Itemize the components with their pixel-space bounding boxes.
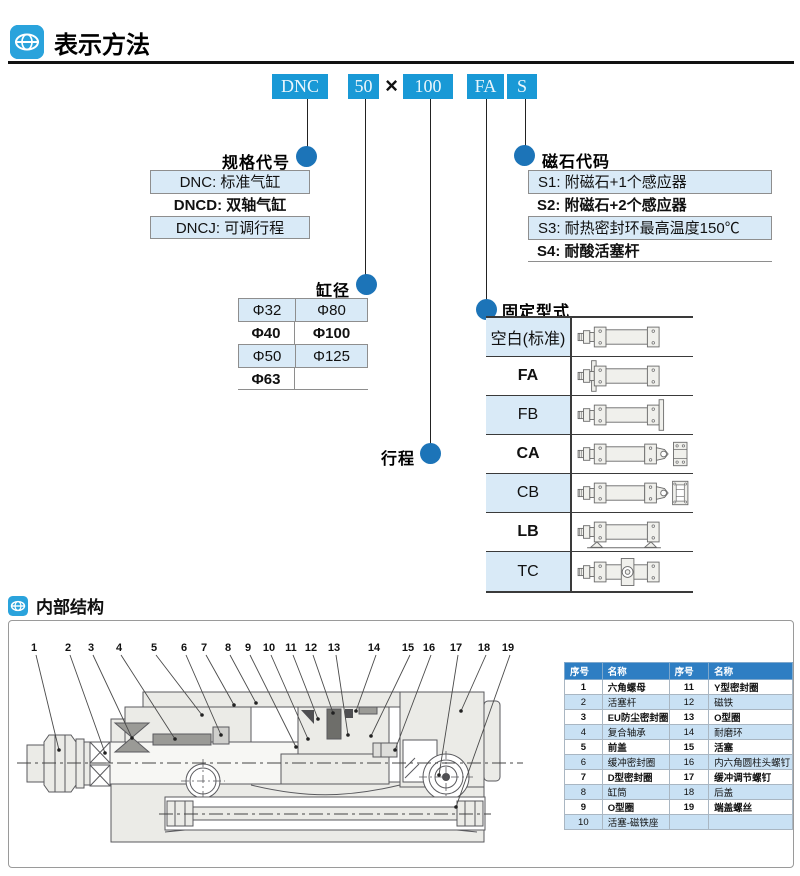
mount-diagram-cb-icon <box>572 474 693 512</box>
callout-number: 10 <box>263 642 275 654</box>
cylinder-cross-section-drawing: 12345678910111213141516171819 <box>15 635 527 853</box>
bore-cell: Φ63 <box>238 368 295 389</box>
parts-row: 9O型圈19端盖螺丝 <box>565 800 793 815</box>
parts-cell: 6 <box>565 755 603 770</box>
parts-row: 10活塞-磁铁座 <box>565 815 793 830</box>
mount-row: LB <box>486 513 693 552</box>
mount-diagram-lb-icon <box>572 513 693 551</box>
callout-number: 11 <box>285 642 297 654</box>
parts-row: 5前盖15活塞 <box>565 740 793 755</box>
parts-table: 序号名称序号名称1六角螺母11Y型密封圈2活塞杆12磁铁3EU防尘密封圈13O型… <box>564 662 793 830</box>
connector-line-stroke <box>430 99 431 444</box>
parts-cell: 11 <box>669 680 709 695</box>
parts-cell: O型圈 <box>602 800 669 815</box>
parts-cell: 14 <box>669 725 709 740</box>
parts-cell: 活塞 <box>709 740 793 755</box>
parts-cell: 磁铁 <box>709 695 793 710</box>
bore-row: Φ40Φ100 <box>238 321 368 344</box>
parts-header-cell: 序号 <box>565 663 603 680</box>
multiply-sign: × <box>380 72 403 100</box>
parts-header-cell: 名称 <box>709 663 793 680</box>
mount-type-table: 空白(标准) FA FB CA <box>486 316 693 593</box>
parts-cell: 端盖螺丝 <box>709 800 793 815</box>
mount-diagram-tc-icon <box>572 552 693 591</box>
bore-table: Φ32Φ80Φ40Φ100Φ50Φ125Φ63 <box>238 298 368 390</box>
mount-diagram-ca-icon <box>572 435 693 473</box>
mount-code: CB <box>486 474 572 512</box>
callout-number: 2 <box>65 642 71 654</box>
parts-cell: 缓冲密封圈 <box>602 755 669 770</box>
series-dot <box>296 146 317 167</box>
parts-cell: 缸筒 <box>602 785 669 800</box>
model-code-stroke: 100 <box>403 74 453 99</box>
parts-header-cell: 序号 <box>669 663 709 680</box>
parts-cell: 16 <box>669 755 709 770</box>
callout-number: 5 <box>151 642 157 654</box>
parts-cell: 13 <box>669 710 709 725</box>
bore-cell: Φ125 <box>296 345 367 367</box>
mount-row: CA <box>486 435 693 474</box>
callout-number: 13 <box>328 642 340 654</box>
model-code-magnet: S <box>507 74 537 99</box>
mount-row: CB <box>486 474 693 513</box>
magnet-code-table: S1: 附磁石+1个感应器S2: 附磁石+2个感应器S3: 耐热密封环最高温度1… <box>528 170 772 262</box>
parts-cell: 5 <box>565 740 603 755</box>
parts-cell: 六角螺母 <box>602 680 669 695</box>
option-row: S1: 附磁石+1个感应器 <box>528 170 772 193</box>
callout-number: 15 <box>402 642 414 654</box>
mount-row: 空白(标准) <box>486 318 693 357</box>
brand-globe-icon <box>10 25 44 59</box>
parts-cell: 耐磨环 <box>709 725 793 740</box>
bore-cell: Φ40 <box>238 322 295 344</box>
model-code-bore: 50 <box>348 74 379 99</box>
parts-cell: EU防尘密封圈 <box>602 710 669 725</box>
model-code-series: DNC <box>272 74 328 99</box>
parts-cell: 8 <box>565 785 603 800</box>
bore-cell: Φ32 <box>239 299 296 321</box>
option-row: S3: 耐热密封环最高温度150℃ <box>528 216 772 239</box>
callout-number: 12 <box>305 642 317 654</box>
connector-line-magnet <box>525 99 526 146</box>
parts-cell: 复合轴承 <box>602 725 669 740</box>
parts-cell: 3 <box>565 710 603 725</box>
option-row: DNCJ: 可调行程 <box>150 216 310 239</box>
option-row: S2: 附磁石+2个感应器 <box>528 193 772 216</box>
parts-row: 6缓冲密封圈16内六角圆柱头螺钉 <box>565 755 793 770</box>
parts-row: 8缸筒18后盖 <box>565 785 793 800</box>
bore-cell <box>295 368 368 389</box>
parts-cell: 内六角圆柱头螺钉 <box>709 755 793 770</box>
parts-cell: 1 <box>565 680 603 695</box>
parts-cell: 后盖 <box>709 785 793 800</box>
datasheet-page: 表示方法 DNC 50 × 100 FA S 规格代号 磁石代码 缸径 固定型式… <box>0 0 800 876</box>
bore-cell: Φ80 <box>296 299 367 321</box>
parts-cell: 10 <box>565 815 603 830</box>
callout-number: 4 <box>116 642 123 654</box>
parts-header-cell: 名称 <box>602 663 669 680</box>
mount-code: 空白(标准) <box>486 318 572 356</box>
page-header: 表示方法 <box>10 22 150 62</box>
parts-cell: 17 <box>669 770 709 785</box>
stroke-label: 行程 <box>347 445 415 469</box>
callout-number: 17 <box>450 642 462 654</box>
section-title: 内部结构 <box>36 593 104 618</box>
page-title: 表示方法 <box>54 25 150 60</box>
mount-row: FA <box>486 357 693 396</box>
mount-diagram-fb-icon <box>572 396 693 434</box>
bore-cell: Φ100 <box>295 322 368 344</box>
parts-cell: 活塞-磁铁座 <box>602 815 669 830</box>
bore-cell: Φ50 <box>239 345 296 367</box>
parts-cell: D型密封圈 <box>602 770 669 785</box>
callout-number: 6 <box>181 642 187 654</box>
callout-number: 18 <box>478 642 490 654</box>
bore-row: Φ50Φ125 <box>238 344 368 367</box>
mount-code: TC <box>486 552 572 591</box>
mount-code: FB <box>486 396 572 434</box>
connector-line-mount <box>486 99 487 300</box>
parts-cell: 19 <box>669 800 709 815</box>
parts-cell: 活塞杆 <box>602 695 669 710</box>
parts-cell: 18 <box>669 785 709 800</box>
mount-diagram-fa-icon <box>572 357 693 395</box>
callout-number: 7 <box>201 642 207 654</box>
bore-dot <box>356 274 377 295</box>
option-row: DNCD: 双轴气缸 <box>150 193 310 216</box>
callout-number: 8 <box>225 642 231 654</box>
option-row: S4: 耐酸活塞杆 <box>528 239 772 262</box>
callout-number: 16 <box>423 642 435 654</box>
parts-cell: 2 <box>565 695 603 710</box>
callout-number: 1 <box>31 642 37 654</box>
connector-line-bore <box>365 99 366 275</box>
parts-row: 7D型密封圈17缓冲调节螺钉 <box>565 770 793 785</box>
callout-number: 9 <box>245 642 251 654</box>
parts-row: 4复合轴承14耐磨环 <box>565 725 793 740</box>
mount-row: FB <box>486 396 693 435</box>
section-header: 内部结构 <box>8 593 104 618</box>
model-code-mount: FA <box>467 74 504 99</box>
bore-row: Φ63 <box>238 367 368 390</box>
parts-cell: 7 <box>565 770 603 785</box>
connector-line-series <box>307 99 308 148</box>
parts-cell: 9 <box>565 800 603 815</box>
mount-code: FA <box>486 357 572 395</box>
header-divider <box>8 61 794 64</box>
callout-number: 3 <box>88 642 94 654</box>
parts-cell: O型圈 <box>709 710 793 725</box>
parts-cell <box>669 815 709 830</box>
parts-cell <box>709 815 793 830</box>
parts-cell: 12 <box>669 695 709 710</box>
parts-cell: 15 <box>669 740 709 755</box>
stroke-dot <box>420 443 441 464</box>
callout-number: 14 <box>368 642 381 654</box>
parts-row: 1六角螺母11Y型密封圈 <box>565 680 793 695</box>
internal-structure-panel: 12345678910111213141516171819 序号名称序号名称1六… <box>8 620 794 868</box>
parts-cell: 缓冲调节螺钉 <box>709 770 793 785</box>
spec-code-table: DNC: 标准气缸DNCD: 双轴气缸DNCJ: 可调行程 <box>150 170 310 239</box>
parts-row: 2活塞杆12磁铁 <box>565 695 793 710</box>
parts-cell: 前盖 <box>602 740 669 755</box>
parts-cell: Y型密封圈 <box>709 680 793 695</box>
magnet-dot <box>514 145 535 166</box>
mount-row: TC <box>486 552 693 591</box>
brand-globe-icon <box>8 596 28 616</box>
parts-cell: 4 <box>565 725 603 740</box>
option-row: DNC: 标准气缸 <box>150 170 310 193</box>
mount-code: CA <box>486 435 572 473</box>
parts-row: 3EU防尘密封圈13O型圈 <box>565 710 793 725</box>
bore-row: Φ32Φ80 <box>238 298 368 321</box>
mount-code: LB <box>486 513 572 551</box>
mount-diagram-blank-icon <box>572 318 693 356</box>
magnet-code-label: 磁石代码 <box>542 148 610 172</box>
callout-number: 19 <box>502 642 514 654</box>
